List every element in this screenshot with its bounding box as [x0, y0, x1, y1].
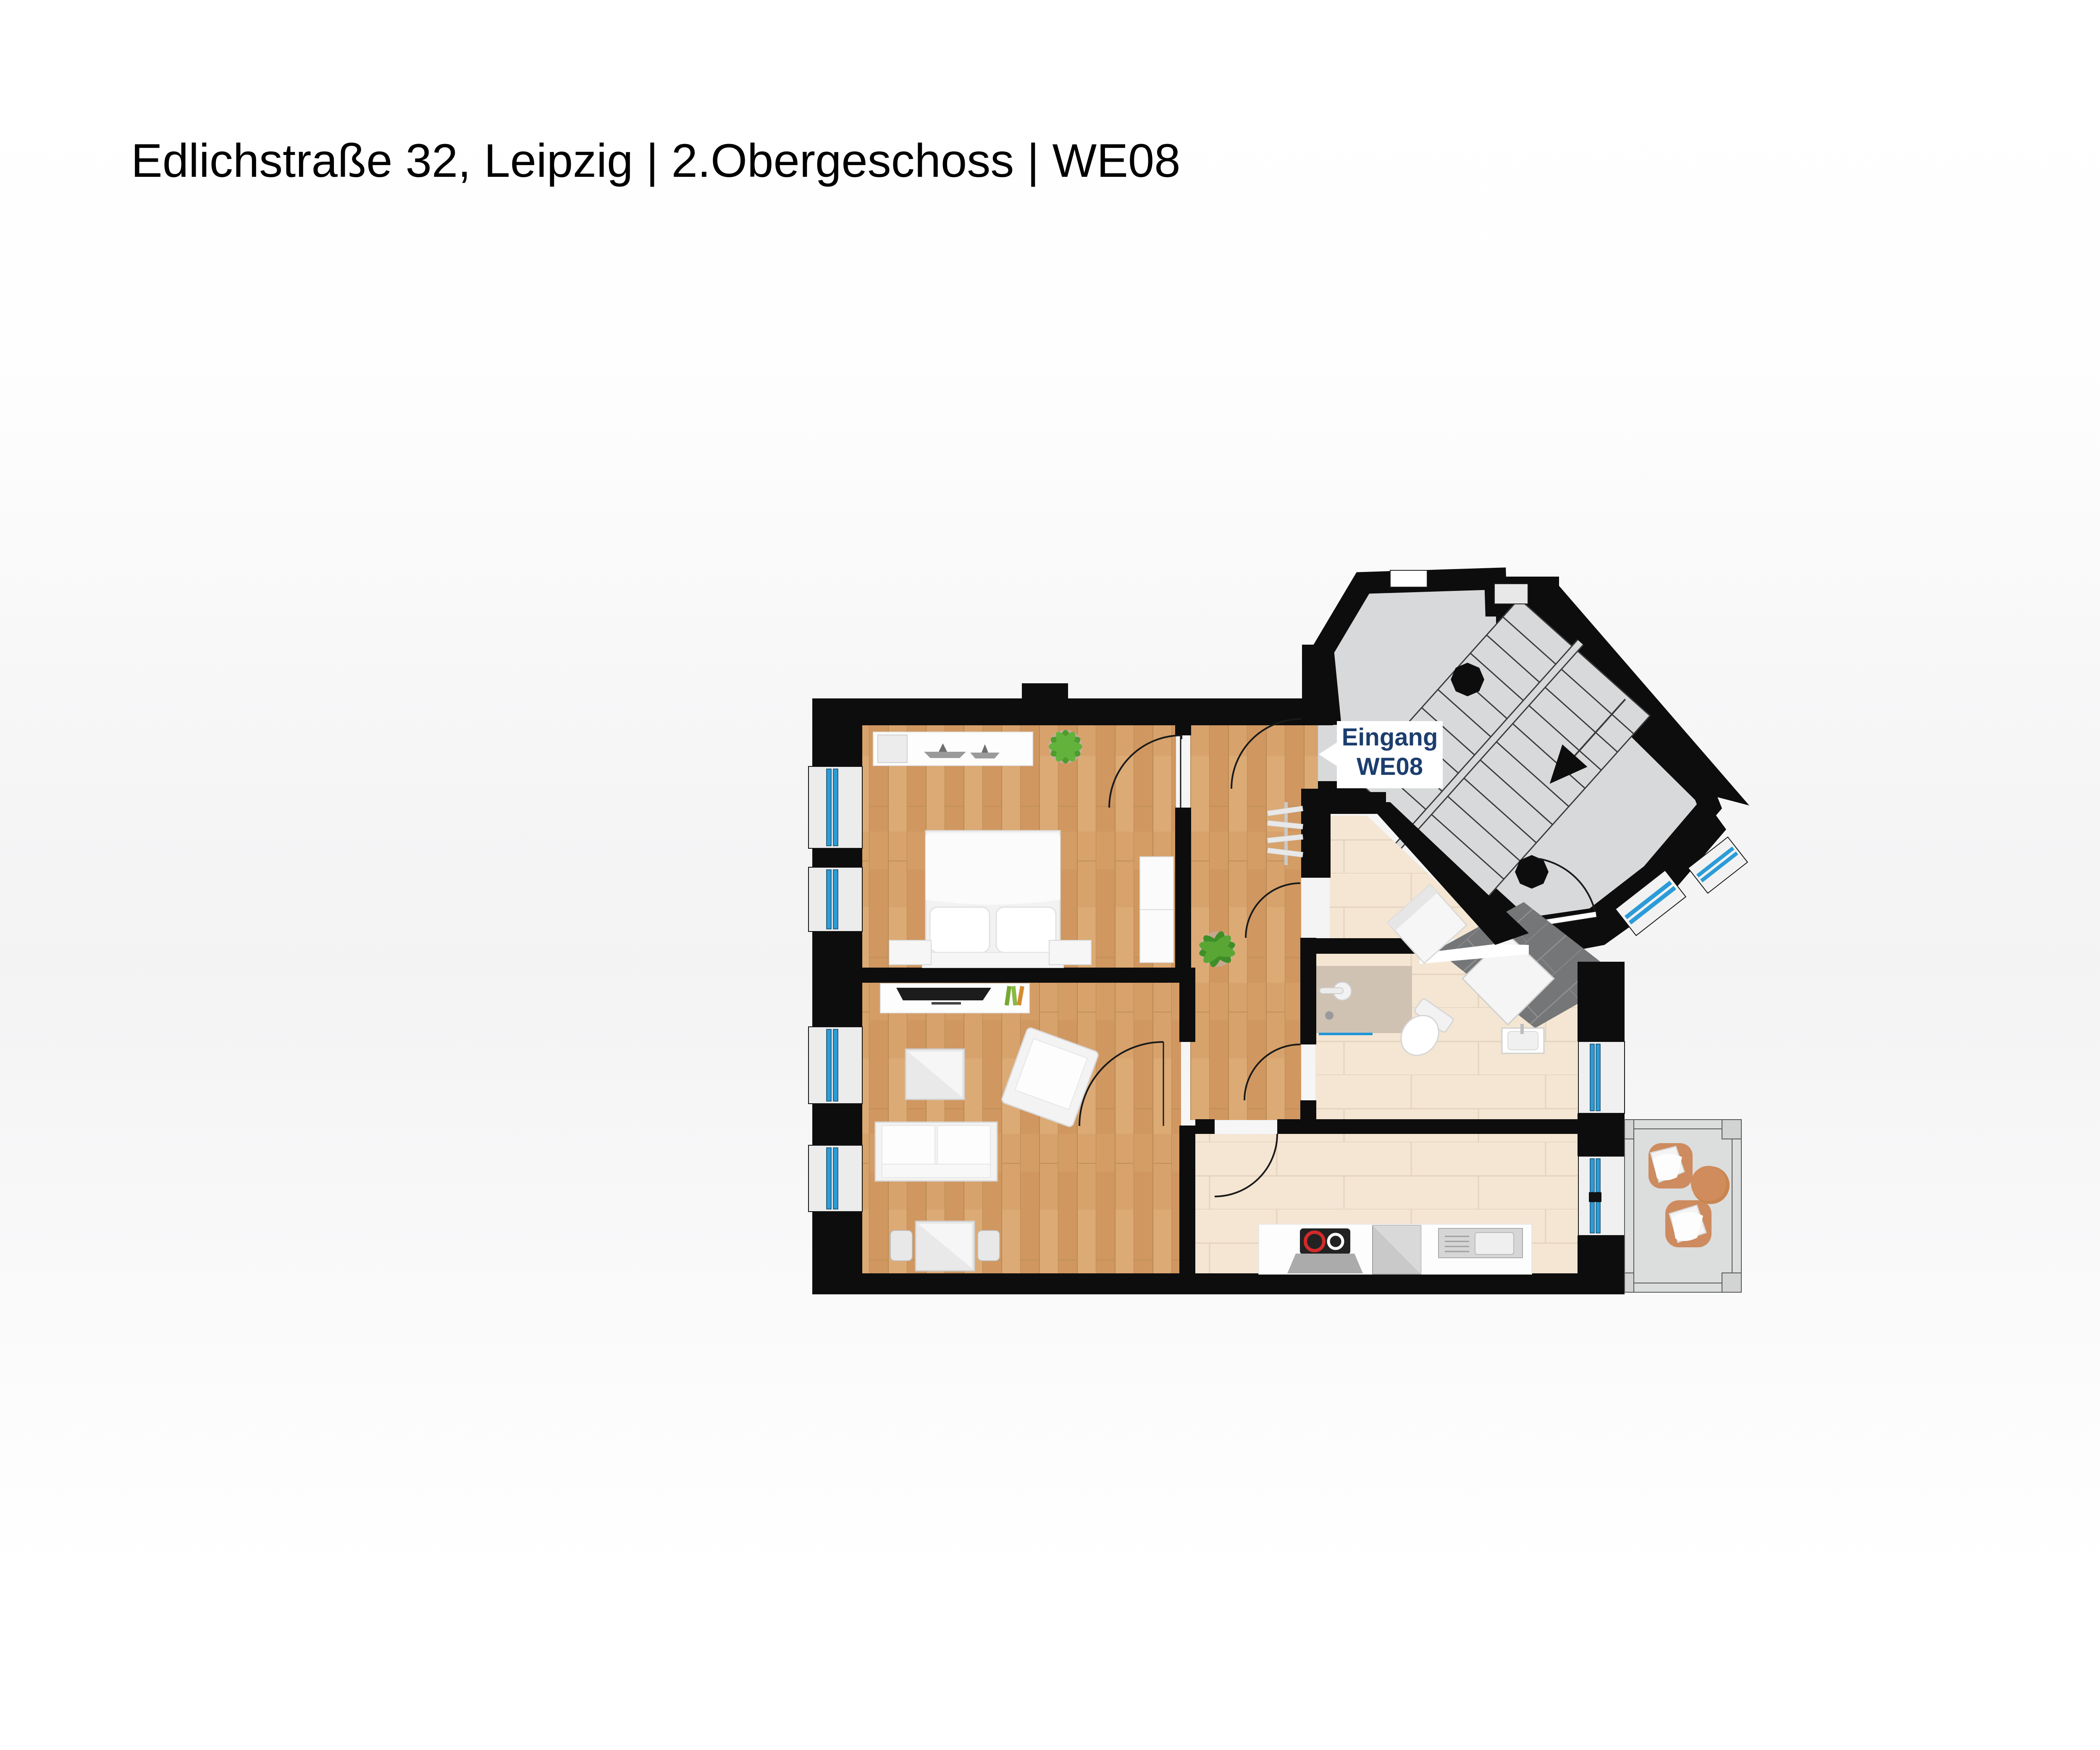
svg-text:Eingang: Eingang: [1342, 724, 1438, 751]
svg-text:WE08: WE08: [1357, 753, 1423, 780]
